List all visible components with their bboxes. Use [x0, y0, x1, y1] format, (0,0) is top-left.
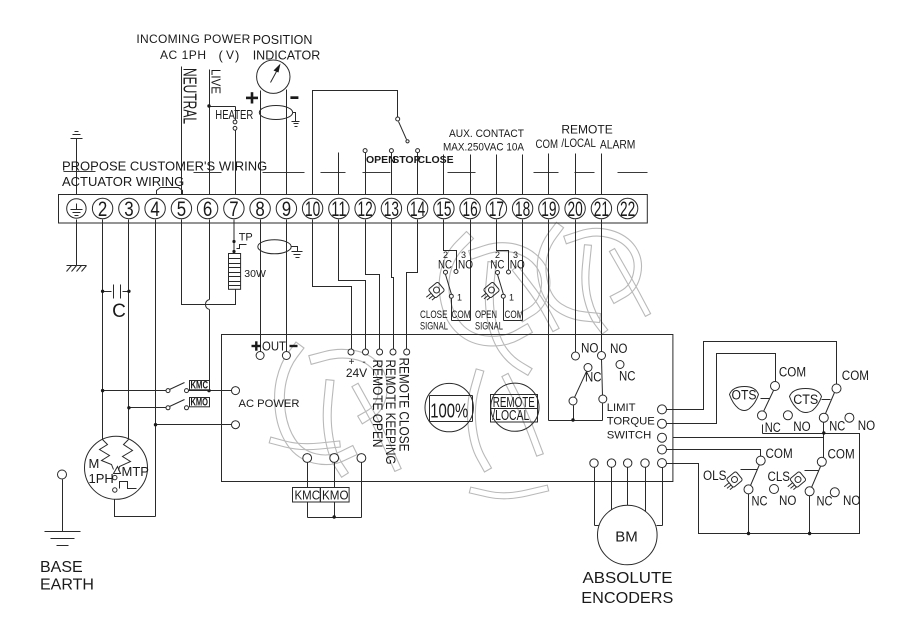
- svg-text:COM: COM: [828, 447, 855, 462]
- svg-text:NO: NO: [858, 418, 875, 433]
- svg-text:TP: TP: [239, 232, 253, 244]
- svg-text:KMO: KMO: [191, 397, 209, 409]
- svg-text:COM: COM: [779, 365, 806, 380]
- svg-text:NC: NC: [752, 494, 768, 509]
- svg-text:PROPOSE CUSTOMER'S WIRING: PROPOSE CUSTOMER'S WIRING: [62, 159, 267, 174]
- svg-text:9: 9: [282, 198, 291, 221]
- svg-text:14: 14: [410, 198, 425, 221]
- svg-text:OUT: OUT: [262, 339, 286, 354]
- svg-text:SIGNAL: SIGNAL: [420, 321, 448, 333]
- svg-text:NO: NO: [610, 341, 628, 356]
- svg-text:STOP: STOP: [392, 154, 420, 166]
- svg-text:NO: NO: [843, 493, 860, 508]
- svg-text:KMC: KMC: [295, 488, 321, 503]
- svg-text:10: 10: [305, 198, 320, 221]
- svg-text:1: 1: [509, 293, 514, 303]
- svg-text:TORQUE: TORQUE: [607, 416, 656, 428]
- svg-text:NC: NC: [438, 258, 452, 272]
- svg-text:8: 8: [255, 198, 264, 221]
- svg-text:NC: NC: [817, 494, 833, 509]
- svg-text:CLS: CLS: [768, 469, 791, 484]
- svg-text:REMOTE: REMOTE: [561, 123, 612, 137]
- svg-text:22: 22: [620, 198, 635, 221]
- svg-text:MAX.250VAC 10A: MAX.250VAC 10A: [443, 142, 525, 154]
- svg-text:SWITCH: SWITCH: [607, 430, 652, 442]
- svg-text:NO: NO: [458, 258, 473, 272]
- svg-text:NEUTRAL: NEUTRAL: [179, 68, 199, 124]
- svg-text:12: 12: [358, 198, 373, 221]
- svg-text:1: 1: [457, 293, 462, 303]
- svg-text:NC: NC: [765, 420, 781, 435]
- svg-text:ALARM: ALARM: [600, 138, 636, 152]
- svg-text:(: (: [219, 48, 224, 63]
- svg-text:SIGNAL: SIGNAL: [475, 321, 503, 333]
- svg-text:NO: NO: [581, 341, 599, 356]
- svg-text:COM: COM: [536, 137, 559, 151]
- svg-text:AUX. CONTACT: AUX. CONTACT: [449, 128, 524, 140]
- svg-text:BASE: BASE: [40, 559, 83, 576]
- svg-text:NC: NC: [585, 370, 602, 385]
- svg-text:KMC: KMC: [191, 379, 209, 391]
- svg-text:COM: COM: [766, 446, 793, 461]
- svg-text:5: 5: [177, 198, 186, 221]
- svg-text:NC: NC: [619, 369, 636, 384]
- svg-text:ACTUATOR WIRING: ACTUATOR WIRING: [62, 174, 184, 189]
- svg-text:COM: COM: [452, 309, 471, 321]
- svg-text:7: 7: [229, 198, 238, 221]
- svg-text:M: M: [89, 456, 100, 471]
- svg-text:15: 15: [436, 198, 451, 221]
- svg-text:EARTH: EARTH: [40, 577, 94, 594]
- svg-text:COM: COM: [505, 309, 524, 321]
- svg-text:AC 1PH: AC 1PH: [160, 48, 206, 62]
- svg-text:INDICATOR: INDICATOR: [253, 49, 321, 63]
- svg-text:1PH: 1PH: [89, 471, 114, 486]
- svg-text:CLOSE: CLOSE: [420, 309, 448, 321]
- svg-text:3: 3: [124, 198, 133, 221]
- svg-text:NO: NO: [510, 258, 525, 272]
- svg-text:17: 17: [489, 198, 504, 221]
- svg-text:4: 4: [150, 198, 160, 221]
- svg-text:): ): [235, 48, 239, 63]
- svg-text:18: 18: [515, 198, 530, 221]
- svg-text:REMOTE CLOSE: REMOTE CLOSE: [397, 358, 413, 452]
- svg-text:21: 21: [594, 198, 609, 221]
- svg-text:OPEN: OPEN: [475, 309, 497, 321]
- svg-text:INCOMING POWER: INCOMING POWER: [136, 32, 250, 46]
- svg-text:24V: 24V: [346, 366, 367, 380]
- svg-text:C: C: [112, 301, 126, 322]
- svg-text:BM: BM: [615, 529, 638, 546]
- svg-text:KMO: KMO: [322, 488, 349, 503]
- svg-text:ABSOLUTE: ABSOLUTE: [583, 570, 673, 587]
- svg-text:POSITION: POSITION: [253, 33, 313, 47]
- svg-text:COM: COM: [842, 368, 869, 383]
- svg-text:HEATER: HEATER: [215, 107, 253, 122]
- svg-text:/LOCAL: /LOCAL: [561, 136, 596, 150]
- svg-text:LIMIT: LIMIT: [607, 402, 636, 414]
- svg-text:ENCODERS: ENCODERS: [581, 590, 673, 607]
- svg-text:AC POWER: AC POWER: [239, 398, 300, 410]
- svg-text:CTS: CTS: [793, 392, 818, 407]
- svg-text:11: 11: [331, 198, 346, 221]
- svg-text:2: 2: [98, 198, 107, 221]
- svg-text:16: 16: [463, 198, 478, 221]
- svg-text:NC: NC: [829, 419, 845, 434]
- svg-text:V: V: [226, 48, 234, 62]
- svg-text:/LOCAL: /LOCAL: [492, 408, 529, 424]
- svg-text:OLS: OLS: [703, 468, 727, 483]
- svg-text:LIVE: LIVE: [209, 69, 224, 94]
- svg-text:NO: NO: [793, 419, 810, 434]
- svg-text:NC: NC: [490, 258, 504, 272]
- svg-text:NO: NO: [779, 493, 796, 508]
- svg-text:OTS: OTS: [732, 388, 757, 403]
- svg-text:30W: 30W: [244, 268, 266, 280]
- svg-text:CLOSE: CLOSE: [418, 154, 454, 166]
- svg-text:20: 20: [568, 198, 583, 221]
- svg-text:100%: 100%: [430, 400, 468, 422]
- svg-text:6: 6: [203, 198, 212, 221]
- svg-text:19: 19: [541, 198, 556, 221]
- svg-text:MTP: MTP: [122, 464, 149, 479]
- svg-text:13: 13: [384, 198, 399, 221]
